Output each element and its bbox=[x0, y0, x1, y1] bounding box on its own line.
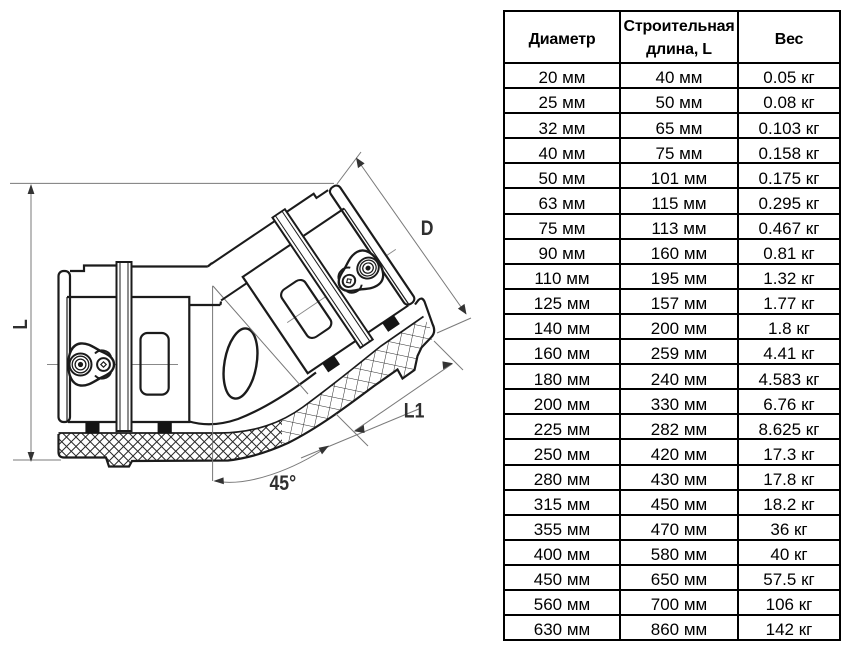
svg-text:L: L bbox=[9, 319, 32, 329]
svg-text:D: D bbox=[421, 217, 434, 241]
svg-text:45°: 45° bbox=[270, 472, 297, 496]
svg-text:L1: L1 bbox=[404, 399, 425, 423]
